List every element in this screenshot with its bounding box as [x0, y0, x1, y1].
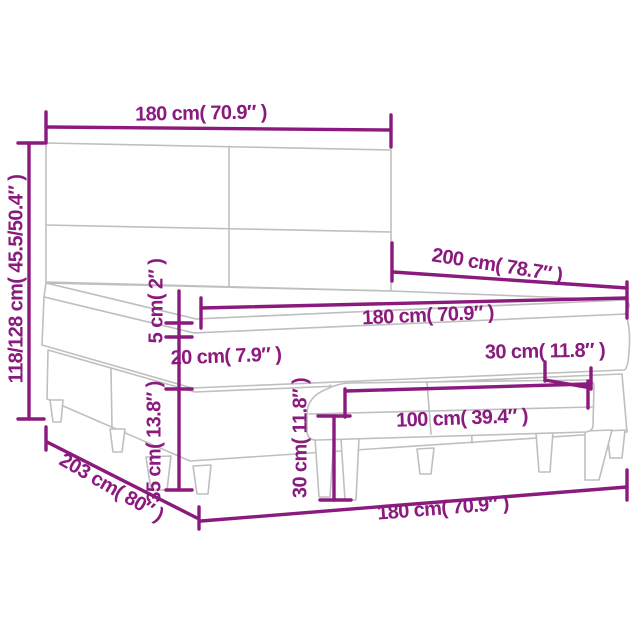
dim-label-bench-length: 100 cm( 39.4″ ) [396, 405, 529, 433]
bench-leg [536, 432, 553, 472]
bench-leg [341, 438, 359, 500]
bed-line-drawing [0, 0, 640, 640]
bench-leg [315, 437, 334, 497]
dim-label-total-height: 118/128 cm( 45.5/50.4″ ) [6, 175, 29, 384]
bench-leg [585, 430, 612, 480]
headboard [46, 143, 391, 291]
dim-label-base-height: 35 cm( 13.8″ ) [144, 381, 167, 502]
dim-label-bench-height: 30 cm( 11.8″ ) [290, 378, 313, 498]
dim-label-mattress-height: 20 cm( 7.9″ ) [170, 344, 281, 371]
dimension-diagram: 180 cm( 70.9″ ) 118/128 cm( 45.5/50.4″ )… [0, 0, 640, 640]
dim-label-headboard-width: 180 cm( 70.9″ ) [135, 101, 267, 126]
dim-label-topper-height: 5 cm( 2″ ) [146, 259, 169, 344]
dim-label-bench-depth: 30 cm( 11.8″ ) [485, 339, 606, 364]
